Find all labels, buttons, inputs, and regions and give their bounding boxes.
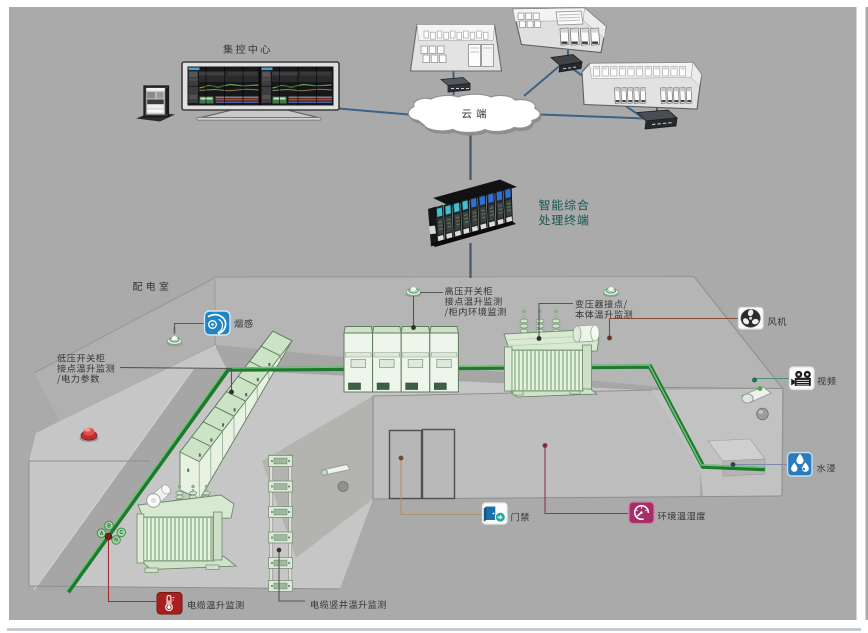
- svg-text:C: C: [119, 530, 123, 536]
- svg-text:N: N: [114, 538, 118, 544]
- svg-text:B: B: [107, 523, 111, 529]
- svg-text:A: A: [100, 531, 104, 537]
